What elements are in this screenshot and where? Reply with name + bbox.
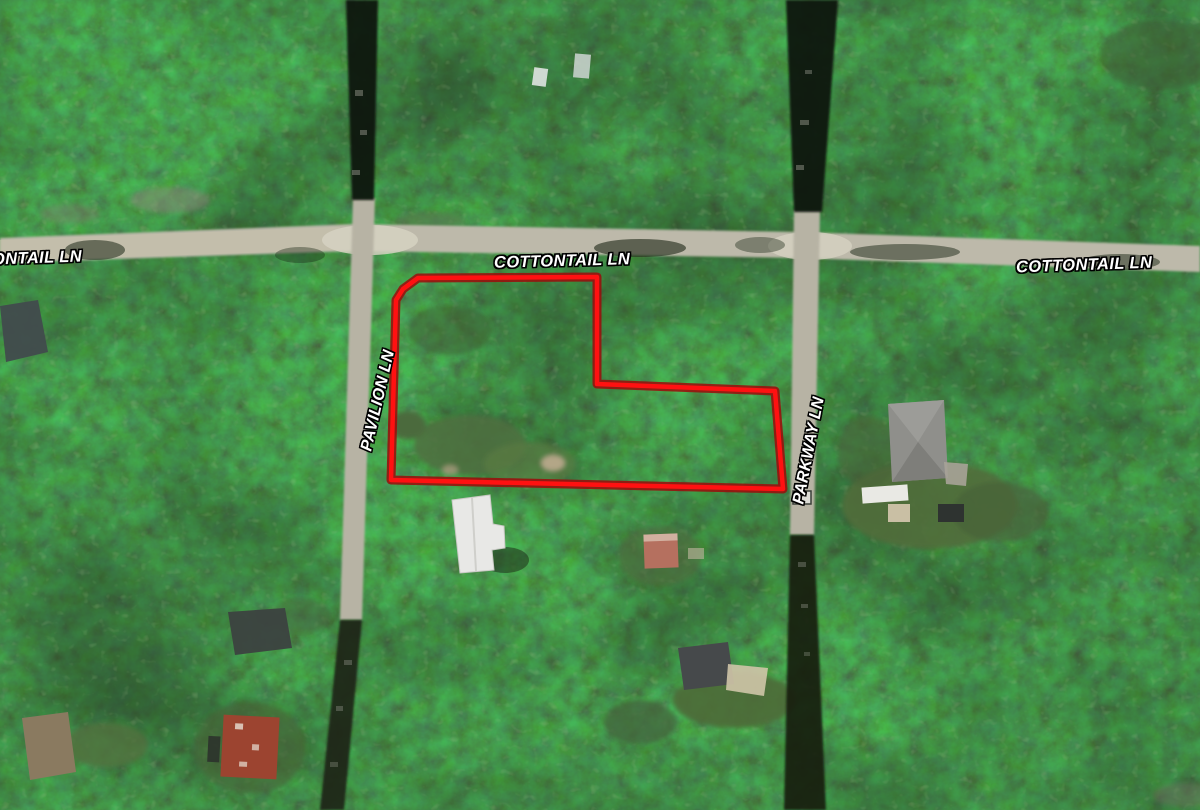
shed-roof-salmon [643, 533, 678, 568]
house-roof-dark-bottom [678, 642, 734, 690]
boat-white [861, 484, 908, 503]
trailer-top-1 [532, 67, 548, 87]
house-roof-dark-gray [228, 608, 292, 655]
satellite-imagery [0, 0, 1200, 810]
aerial-map-canvas[interactable]: ONTAIL LN COTTONTAIL LN COTTONTAIL LN PA… [0, 0, 1200, 810]
road-label-cottontail-ln-center: COTTONTAIL LN [494, 250, 631, 273]
house-roof-brown [22, 712, 76, 780]
ground-patch [688, 548, 704, 559]
forest-sunlit-speckles [0, 0, 1200, 810]
trailer-top-2 [573, 53, 591, 78]
road-label-cottontail-ln-left: ONTAIL LN [0, 247, 82, 269]
trailer-tan [888, 504, 910, 522]
vehicle-dark [938, 504, 964, 522]
